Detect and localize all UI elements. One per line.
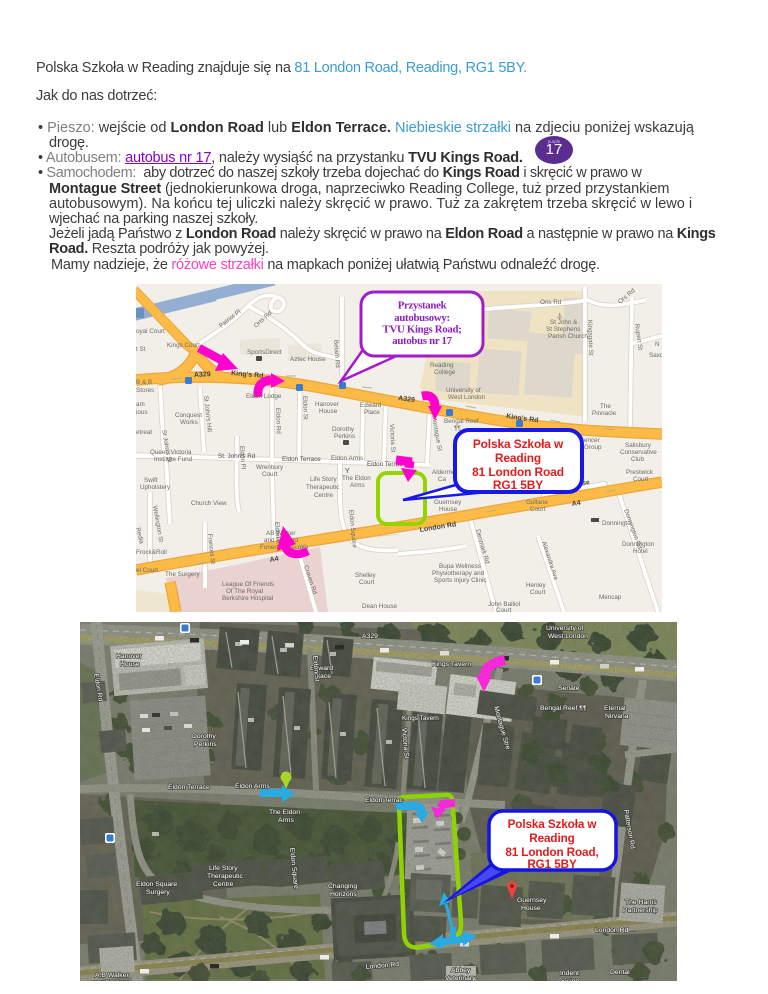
svg-text:Prestwick: Prestwick [626,469,654,476]
svg-text:Henley: Henley [526,582,546,589]
svg-text:Eldon Arms: Eldon Arms [235,783,270,790]
svg-text:Eldon Rd: Eldon Rd [274,408,282,435]
svg-text:Eldon Square: Eldon Square [136,881,177,888]
svg-text:t St: t St [136,346,146,353]
svg-text:Hanover: Hanover [116,653,142,660]
svg-text:Gullane: Gullane [526,499,548,506]
svg-text:Ca: Ca [438,476,447,483]
svg-text:Bupa Wellness: Bupa Wellness [439,563,481,570]
svg-text:Wrenbury: Wrenbury [256,464,284,471]
svg-text:Institute Fund: Institute Fund [154,456,193,463]
svg-text:Eldon Terrace: Eldon Terrace [282,456,321,463]
svg-text:Pinnacle: Pinnacle [592,410,617,417]
svg-text:Alderme: Alderme [432,469,456,476]
svg-text:Parish Church: Parish Church [548,333,588,340]
svg-text:Y: Y [345,468,350,475]
svg-text:81 London Road: 81 London Road [472,465,564,479]
svg-text:RG1 5BY: RG1 5BY [527,858,577,871]
svg-text:Eldon Lodge: Eldon Lodge [246,393,282,400]
svg-text:The: The [600,403,611,410]
svg-text:N: N [655,341,660,348]
svg-text:Court: Court [530,589,546,596]
svg-text:Guernsey: Guernsey [517,897,547,904]
svg-text:Berkshire Hospital: Berkshire Hospital [222,595,273,602]
svg-text:RG1 5BY: RG1 5BY [493,478,543,492]
svg-text:Place: Place [364,409,380,416]
svg-text:Physiotherapy and: Physiotherapy and [432,570,485,577]
svg-text:Eldon St: Eldon St [301,396,309,420]
svg-text:Kings Tavern: Kings Tavern [402,715,439,722]
svg-text:Mencap: Mencap [599,594,622,601]
svg-text:Saxon: Saxon [649,352,662,359]
svg-text:encer: encer [584,437,600,444]
svg-text:ious: ious [136,409,148,416]
svg-text:Therapeutic: Therapeutic [207,873,243,880]
svg-text:Dorothy: Dorothy [192,733,216,740]
svg-text:TVU Kings Road;: TVU Kings Road; [383,324,462,336]
svg-text:Reading: Reading [529,832,574,845]
svg-text:Veterinary: Veterinary [445,975,476,981]
svg-text:House: House [521,905,541,912]
svg-text:Of The Royal: Of The Royal [226,588,263,595]
svg-text:Oris Rd: Oris Rd [540,299,562,306]
svg-text:Changing: Changing [328,883,357,890]
svg-text:Indent: Indent [560,970,579,977]
svg-text:and Son Ltd: and Son Ltd [92,980,129,981]
svg-text:Conquest: Conquest [175,412,202,419]
svg-text:autobusowy:: autobusowy: [394,312,450,324]
svg-text:Eldon Arms: Eldon Arms [331,455,363,462]
svg-text:Surgery: Surgery [146,889,170,896]
svg-text:The Eldon: The Eldon [342,475,371,482]
svg-text:Reading: Reading [495,451,541,465]
svg-text:Horizons: Horizons [330,891,357,898]
svg-text:Court: Court [496,607,512,612]
svg-text:Therapeutic: Therapeutic [306,484,339,491]
svg-text:Eternal: Eternal [604,705,626,712]
svg-text:St Stephens: St Stephens [546,326,580,333]
svg-text:A329: A329 [194,371,211,379]
svg-text:House: House [319,408,338,415]
svg-text:London Rd: London Rd [595,927,628,934]
svg-text:Court: Court [633,476,649,483]
svg-text:Dorothy: Dorothy [332,426,355,433]
svg-text:University of: University of [446,387,481,394]
svg-text:Design: Design [558,978,579,981]
svg-text:el Court: el Court [136,567,158,574]
svg-text:Bengal Reef: Bengal Reef [444,418,479,425]
svg-text:Court: Court [530,506,546,513]
svg-text:Hanover: Hanover [315,401,339,408]
svg-text:St. John's Rd: St. John's Rd [218,453,256,460]
svg-text:Senate: Senate [558,685,580,692]
svg-text:Perkins: Perkins [334,433,355,440]
svg-text:Przystanek: Przystanek [398,300,447,312]
svg-text:Perkins: Perkins [194,741,217,748]
svg-text:St John &: St John & [550,319,578,326]
svg-text:The Eldon: The Eldon [269,809,300,816]
svg-text:Life Story: Life Story [209,865,238,872]
svg-text:Sports Injury Clinic: Sports Injury Clinic [434,577,487,584]
svg-text:Club: Club [631,456,644,463]
svg-text:Hotel: Hotel [633,548,648,555]
svg-text:Centre: Centre [213,881,234,888]
svg-text:Aztec House: Aztec House [290,356,326,363]
svg-text:Polska Szkoła w: Polska Szkoła w [508,818,598,831]
svg-text:A4: A4 [571,500,581,508]
svg-text:B & B: B & B [136,379,152,386]
svg-text:West London: West London [448,394,485,401]
svg-text:Group: Group [584,444,602,451]
svg-text:Life Story: Life Story [310,476,337,483]
svg-text:Edward: Edward [360,402,382,409]
svg-text:autobus nr 17: autobus nr 17 [392,335,452,347]
svg-text:Court: Court [359,579,375,586]
svg-text:Nirvana: Nirvana [605,713,629,720]
svg-text:Dean House: Dean House [362,603,398,610]
svg-text:Conservative: Conservative [620,449,657,456]
svg-text:A.B Walker: A.B Walker [95,972,129,979]
svg-text:College: College [434,369,456,376]
svg-text:⛪: ⛪ [556,312,563,320]
svg-text:Bengal Reef ¶¶: Bengal Reef ¶¶ [540,705,587,712]
svg-text:etreat: etreat [136,429,152,436]
svg-text:Church View: Church View [191,500,227,507]
svg-text:Reading: Reading [430,362,454,369]
svg-text:Kings Court: Kings Court [167,342,200,349]
svg-text:League Of Friends: League Of Friends [222,581,274,588]
svg-text:Stores: Stores [136,387,154,394]
svg-text:West London: West London [548,633,588,640]
svg-text:Dental: Dental [610,969,630,976]
svg-text:Abbey: Abbey [451,967,471,974]
svg-text:Shelley: Shelley [355,572,377,579]
svg-text:Arms: Arms [350,482,365,489]
svg-text:Works: Works [180,419,198,426]
svg-text:Frock&Roll: Frock&Roll [136,549,167,556]
svg-text:University of: University of [546,625,584,632]
svg-text:Guernsey: Guernsey [434,499,462,506]
svg-text:Kings Tavern: Kings Tavern [432,661,471,668]
svg-text:Kingsgate St: Kingsgate St [586,320,594,356]
svg-text:Centre: Centre [314,492,333,499]
svg-text:Partnership: Partnership [623,907,658,914]
svg-text:Polska Szkoła w: Polska Szkoła w [473,437,564,451]
svg-text:House: House [120,661,140,668]
svg-text:The Harris: The Harris [625,899,657,906]
svg-text:Salisbury: Salisbury [625,442,652,449]
svg-text:am: am [136,401,145,408]
svg-text:SportsDirect: SportsDirect [247,349,282,356]
svg-text:The Surgery: The Surgery [165,571,200,578]
svg-text:Upholstery: Upholstery [140,484,171,491]
svg-text:Arms: Arms [278,817,294,824]
svg-text:Eldon Terrac: Eldon Terrac [365,797,404,804]
svg-text:Swift: Swift [144,477,158,484]
svg-text:Court: Court [262,471,278,478]
svg-text:House: House [439,506,458,513]
svg-text:Eldon Terrace: Eldon Terrace [168,784,210,791]
svg-text:oyal Court: oyal Court [136,328,165,335]
svg-text:A329: A329 [362,633,378,640]
